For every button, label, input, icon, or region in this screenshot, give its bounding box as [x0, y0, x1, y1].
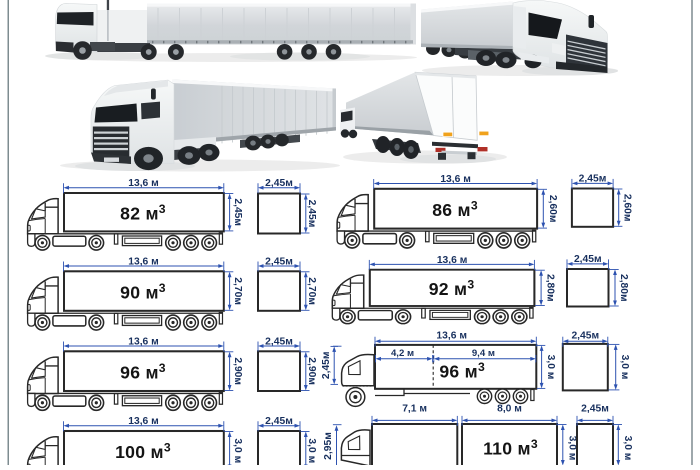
svg-text:3,0 м: 3,0 м: [619, 355, 630, 380]
svg-text:3,0 м: 3,0 м: [566, 436, 577, 461]
svg-text:2,45м: 2,45м: [232, 198, 243, 226]
svg-text:2,45м: 2,45м: [321, 351, 332, 379]
svg-text:2,60м: 2,60м: [547, 195, 558, 223]
svg-text:3,0 м: 3,0 м: [232, 438, 243, 463]
svg-text:4,2 м: 4,2 м: [391, 348, 414, 359]
svg-text:2,80м: 2,80м: [545, 274, 556, 302]
svg-text:9,4 м: 9,4 м: [472, 348, 495, 359]
svg-text:2,45м: 2,45м: [571, 330, 599, 341]
svg-text:2,70м: 2,70м: [232, 277, 243, 305]
svg-text:2,90м: 2,90м: [232, 357, 243, 385]
svg-text:2,70м: 2,70м: [306, 277, 317, 305]
svg-text:110 м3: 110 м3: [483, 437, 538, 459]
svg-text:2,45м: 2,45м: [306, 200, 317, 228]
svg-text:3,0 м: 3,0 м: [306, 438, 317, 463]
svg-text:2,60м: 2,60м: [622, 194, 633, 222]
svg-text:3,0 м: 3,0 м: [545, 355, 556, 380]
svg-text:2,80м: 2,80м: [618, 274, 629, 302]
svg-text:2,95м: 2,95м: [323, 432, 334, 460]
svg-text:7,1 м: 7,1 м: [402, 404, 427, 415]
svg-text:100 м3: 100 м3: [115, 441, 171, 463]
svg-text:2,90м: 2,90м: [306, 357, 317, 385]
svg-text:2,45м: 2,45м: [581, 404, 609, 415]
svg-text:8,0 м: 8,0 м: [497, 404, 522, 415]
svg-text:3,0 м: 3,0 м: [622, 436, 633, 461]
svg-text:13,6 м: 13,6 м: [436, 330, 467, 341]
